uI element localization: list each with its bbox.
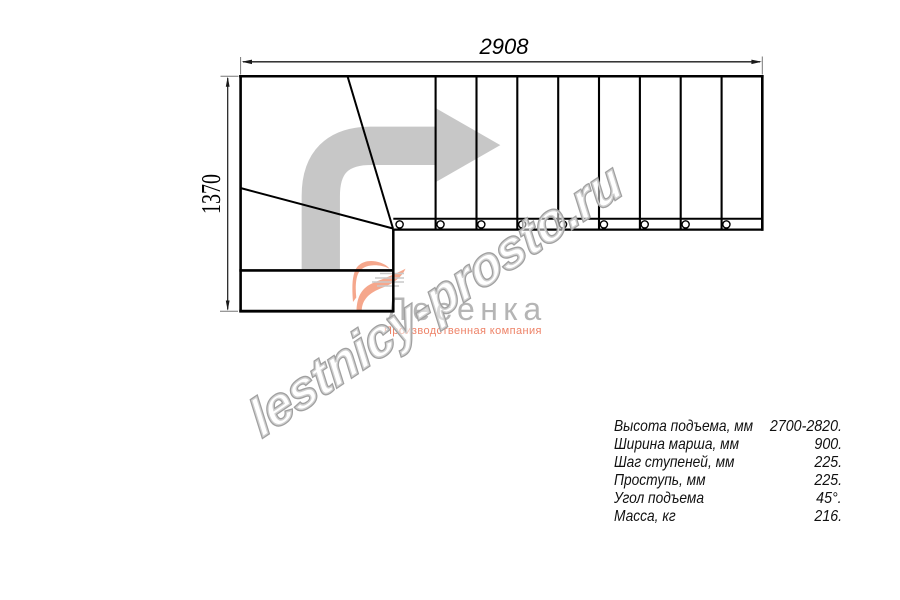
svg-text:lestnicy-prosto.ru: lestnicy-prosto.ru xyxy=(240,152,631,449)
